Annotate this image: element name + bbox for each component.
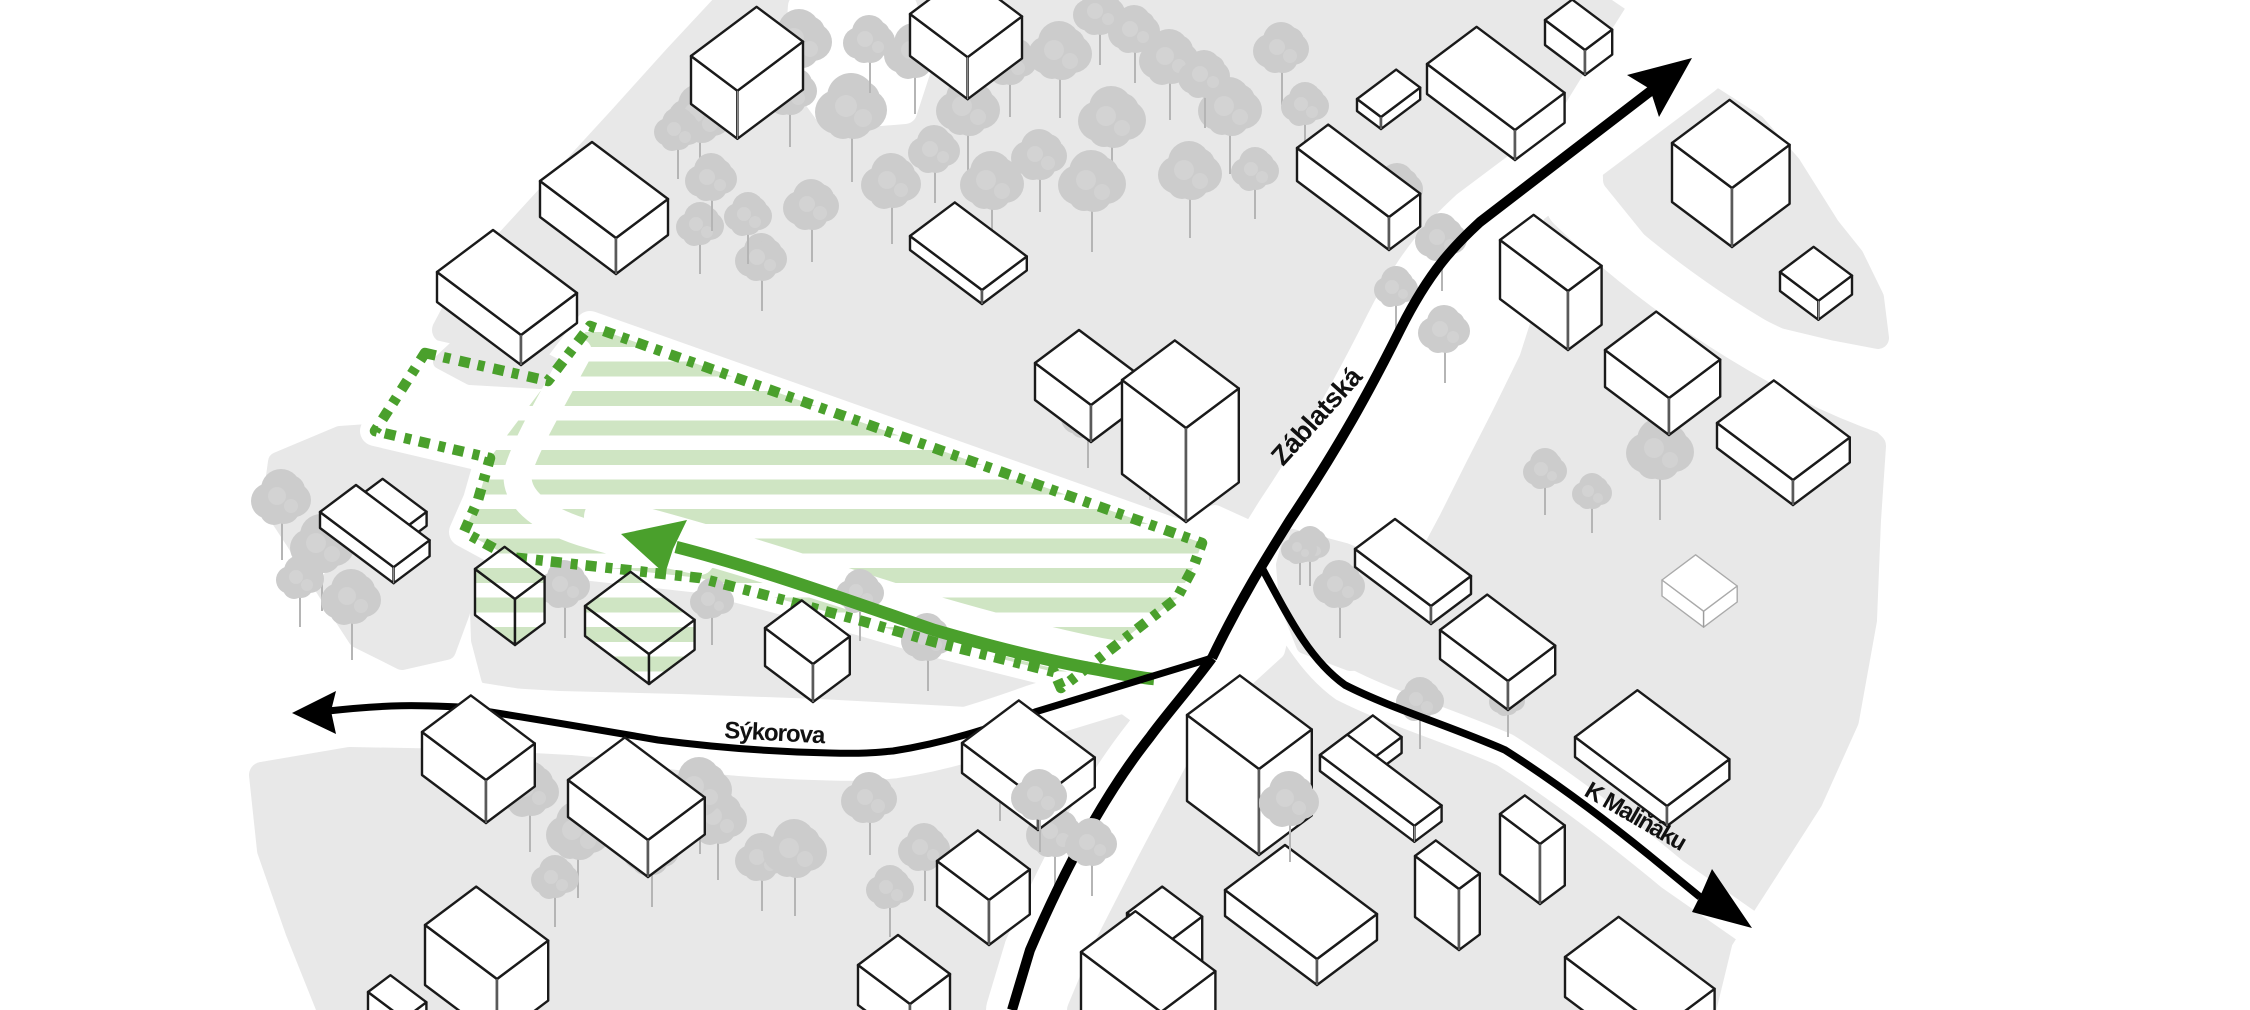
svg-text:Sýkorova: Sýkorova xyxy=(724,717,827,749)
